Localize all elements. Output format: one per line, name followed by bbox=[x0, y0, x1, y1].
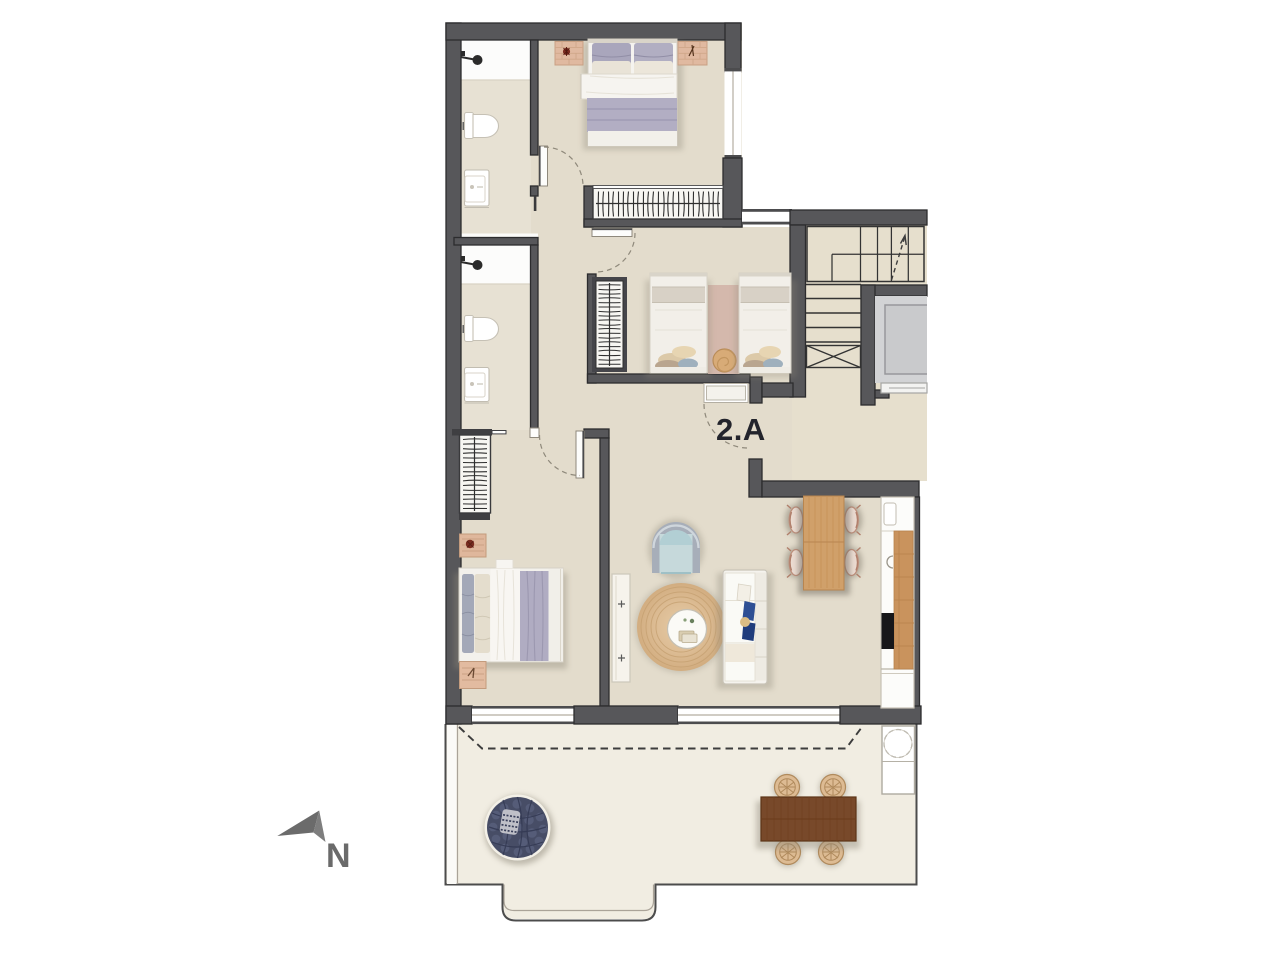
svg-text:2.A: 2.A bbox=[716, 412, 766, 447]
svg-text:N: N bbox=[326, 837, 351, 875]
